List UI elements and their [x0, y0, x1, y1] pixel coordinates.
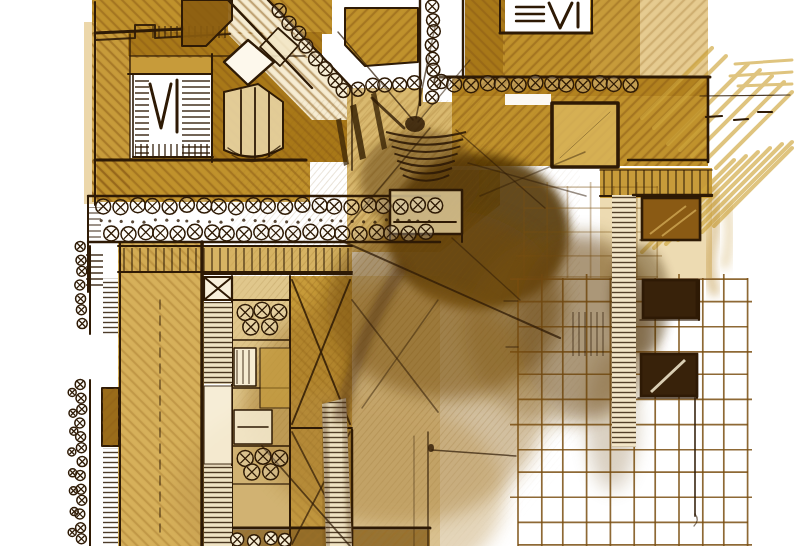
- paving-dot: [373, 221, 376, 224]
- paving-dot: [385, 218, 388, 221]
- paving-dot: [351, 220, 354, 223]
- paving-dot: [254, 219, 257, 222]
- plaza-block: [643, 280, 697, 318]
- paving-dot: [408, 219, 411, 222]
- paving-dot: [100, 219, 103, 222]
- west-ladder-strip-lower: [103, 448, 118, 546]
- paving-dot: [142, 221, 145, 224]
- paving-dot: [285, 220, 288, 223]
- stepped-walkway: [611, 195, 637, 447]
- west-ladder-strip-upper: [103, 278, 118, 334]
- paving-dot: [242, 219, 245, 222]
- ink-knot: [405, 116, 425, 132]
- east-colonnade: [600, 170, 712, 196]
- paving-dot: [262, 219, 265, 222]
- bay-window-building: [224, 84, 283, 162]
- paving-dot: [362, 220, 365, 223]
- dark-plaza-blocks: [641, 198, 700, 396]
- paving-dot: [208, 220, 211, 223]
- paving-dot: [165, 219, 168, 222]
- paving-dot: [331, 219, 334, 222]
- paving-dot: [177, 219, 180, 222]
- paving-dot: [396, 219, 399, 222]
- paving-dot: [428, 220, 431, 223]
- paving-dot: [339, 219, 342, 222]
- paving-dot: [120, 220, 123, 223]
- paving-dot: [231, 218, 234, 221]
- sketch-page: [0, 0, 794, 546]
- paving-dot: [416, 219, 419, 222]
- paving-dot: [308, 218, 311, 221]
- paving-dot: [296, 221, 299, 224]
- paving-dot: [319, 219, 322, 222]
- paving-dot: [197, 220, 200, 223]
- paving-dot: [131, 220, 134, 223]
- paving-dot: [108, 219, 111, 222]
- site-plan-sketch: [0, 0, 794, 546]
- paving-dot: [185, 219, 188, 222]
- south-colonnade: [118, 246, 352, 274]
- paving-dot: [154, 218, 157, 221]
- striped-patch: [572, 312, 608, 356]
- paving-dot: [219, 221, 222, 224]
- paving-dot: [274, 220, 277, 223]
